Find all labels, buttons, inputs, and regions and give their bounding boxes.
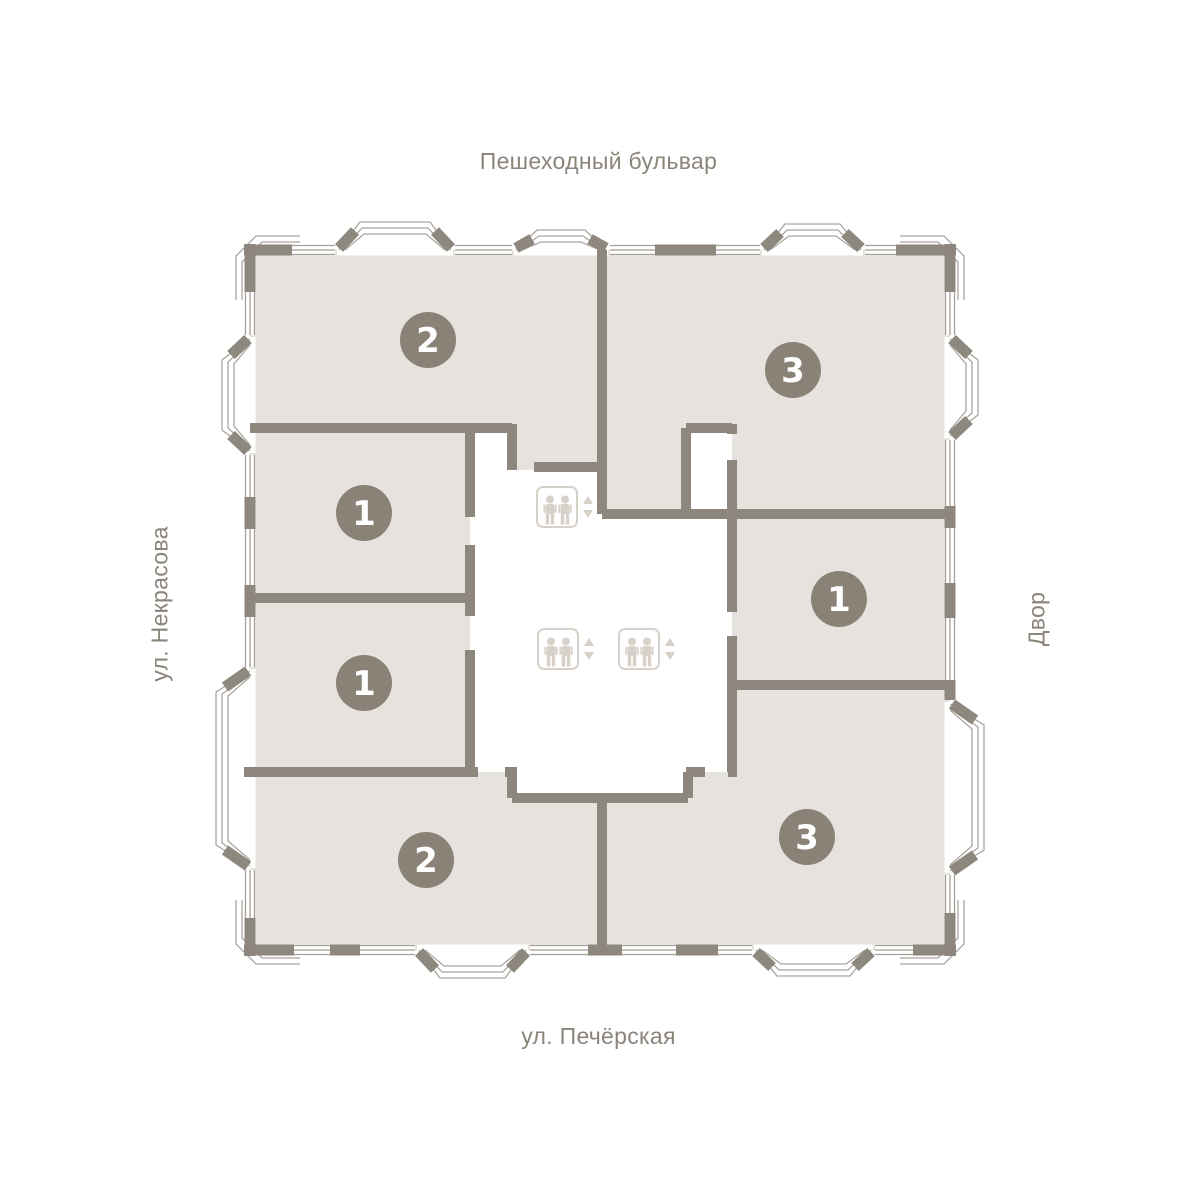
- apartment-badge[interactable]: 1: [336, 655, 392, 711]
- apartment-badge[interactable]: 1: [811, 571, 867, 627]
- apartment-rooms-number: 3: [795, 818, 819, 858]
- apartment-rooms-number: 1: [352, 664, 376, 704]
- floor-plan-page: Пешеходный бульвар ул. Некрасова Двор ул…: [0, 0, 1197, 1200]
- apartment-badge[interactable]: 2: [398, 832, 454, 888]
- apartment-badge[interactable]: 2: [400, 312, 456, 368]
- apartment-bottom-right[interactable]: [602, 685, 950, 950]
- apartment-rooms-number: 2: [414, 841, 438, 881]
- floor-plan: 2311123: [0, 0, 1197, 1200]
- apartment-badge[interactable]: 1: [336, 485, 392, 541]
- apartment-rooms-number: 2: [416, 321, 440, 361]
- apartment-badge[interactable]: 3: [765, 342, 821, 398]
- elevator-icon: [538, 629, 594, 669]
- apartment-badge[interactable]: 3: [779, 809, 835, 865]
- elevator-icon: [537, 487, 593, 527]
- apartment-rooms-number: 3: [781, 351, 805, 391]
- apartment-rooms-number: 1: [827, 580, 851, 620]
- elevator-icon: [619, 629, 675, 669]
- apartment-rooms-number: 1: [352, 494, 376, 534]
